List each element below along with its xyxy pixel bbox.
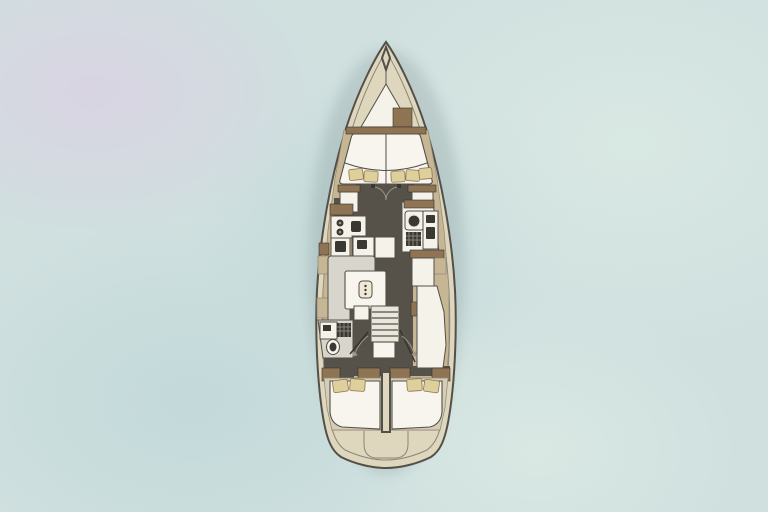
island-appliance-icon bbox=[357, 240, 367, 249]
toilet-icon bbox=[408, 215, 420, 227]
head-trim bbox=[404, 200, 434, 208]
galley-trim bbox=[330, 204, 353, 215]
door-hinge bbox=[397, 184, 401, 188]
island-module bbox=[375, 237, 395, 258]
aft-sink-icon bbox=[323, 325, 331, 331]
pillow-icon bbox=[364, 171, 379, 183]
shower-grate-icon bbox=[406, 232, 421, 246]
wardrobe-trim-starboard bbox=[408, 185, 436, 192]
galley-sink-icon bbox=[335, 241, 346, 252]
v-berth-headboard-trim bbox=[346, 127, 426, 134]
pillow-icon bbox=[419, 167, 433, 179]
side-step bbox=[354, 306, 369, 320]
water-background bbox=[0, 0, 768, 512]
pillow-icon bbox=[391, 171, 406, 183]
pillow-icon bbox=[332, 379, 349, 393]
centerpiece-dot bbox=[364, 293, 366, 295]
centerpiece-dot bbox=[364, 285, 366, 287]
ladder-landing bbox=[373, 342, 395, 358]
pillow-icon bbox=[406, 170, 421, 182]
port-locker bbox=[317, 298, 329, 318]
wardrobe-trim-port bbox=[338, 185, 360, 192]
bow-hatch bbox=[393, 108, 412, 127]
vanity-cabinet-icon bbox=[426, 227, 435, 239]
door-hinge bbox=[371, 184, 375, 188]
pillow-icon bbox=[350, 379, 366, 392]
forward-head bbox=[402, 200, 439, 252]
galley-side-locker bbox=[319, 243, 329, 255]
pillow-icon bbox=[423, 379, 440, 393]
galley-sink-icon bbox=[351, 221, 361, 232]
burner-center bbox=[339, 231, 342, 234]
starboard-locker bbox=[434, 258, 446, 274]
pillow-icon bbox=[407, 378, 423, 391]
pillow-icon bbox=[349, 168, 364, 180]
burner-center bbox=[339, 222, 342, 225]
vanity-sink-icon bbox=[426, 215, 435, 223]
centerpiece-dot bbox=[364, 289, 366, 291]
port-locker bbox=[318, 256, 329, 274]
chart-table bbox=[412, 258, 434, 286]
cabin-divider bbox=[382, 372, 390, 432]
aft-cabins bbox=[324, 372, 448, 432]
starboard-trim bbox=[410, 250, 444, 258]
yacht-floor-plan bbox=[0, 0, 768, 512]
aft-toilet-seat bbox=[330, 343, 337, 352]
